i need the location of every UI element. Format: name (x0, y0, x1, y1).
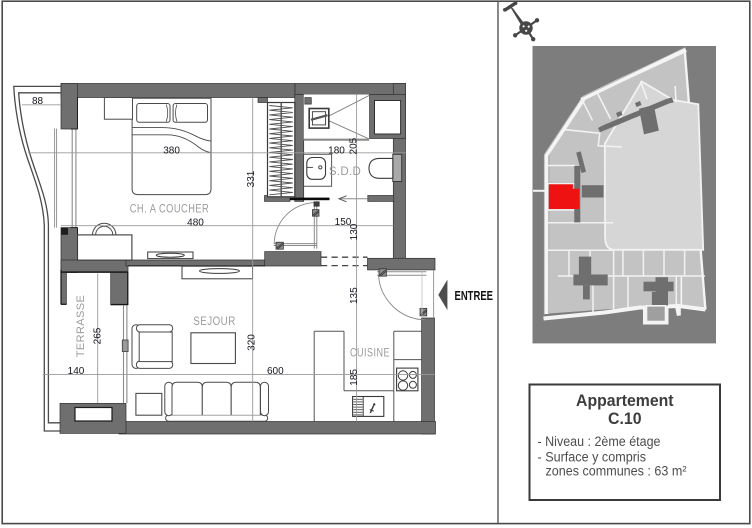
svg-text:320: 320 (246, 334, 257, 351)
svg-text:CH. A COUCHER: CH. A COUCHER (130, 204, 210, 216)
svg-text:S.D.D: S.D.D (329, 166, 361, 178)
svg-text:331: 331 (246, 170, 257, 187)
svg-text:Appartement: Appartement (576, 391, 674, 410)
svg-text:CUISINE: CUISINE (350, 348, 390, 360)
svg-text:- Niveau : 2ème étage: - Niveau : 2ème étage (538, 434, 661, 449)
svg-text:185: 185 (349, 369, 360, 386)
svg-text:180: 180 (328, 145, 345, 156)
svg-text:C.10: C.10 (608, 409, 642, 428)
svg-text:SEJOUR: SEJOUR (193, 314, 236, 328)
svg-text:205: 205 (349, 137, 360, 154)
svg-text:130: 130 (349, 223, 360, 240)
svg-text:600: 600 (267, 366, 284, 377)
svg-text:380: 380 (163, 145, 180, 156)
svg-text:ENTREE: ENTREE (455, 289, 494, 303)
svg-text:480: 480 (187, 217, 204, 228)
svg-text:140: 140 (68, 366, 85, 377)
svg-text:88: 88 (32, 96, 44, 107)
svg-text:- Surface y compris: - Surface y compris (538, 449, 647, 464)
svg-text:135: 135 (349, 287, 360, 304)
svg-text:265: 265 (93, 327, 104, 344)
svg-text:TERRASSE: TERRASSE (75, 295, 87, 358)
svg-text:zones communes : 63 m²: zones communes : 63 m² (546, 464, 687, 479)
